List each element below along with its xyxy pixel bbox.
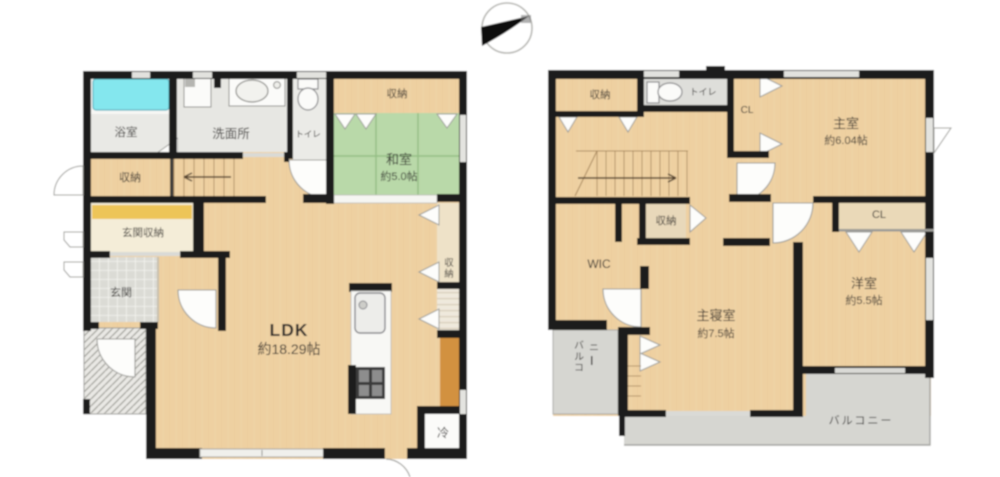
svg-text:洋室: 洋室 bbox=[851, 276, 877, 291]
svg-text:収: 収 bbox=[444, 257, 454, 269]
svg-text:約5.5帖: 約5.5帖 bbox=[845, 293, 882, 307]
svg-text:約5.0帖: 約5.0帖 bbox=[380, 169, 417, 183]
svg-text:主室: 主室 bbox=[833, 116, 859, 131]
svg-text:CL: CL bbox=[741, 105, 754, 116]
svg-text:バルコ: バルコ bbox=[572, 340, 584, 373]
svg-text:収納: 収納 bbox=[590, 88, 611, 101]
svg-text:納: 納 bbox=[444, 268, 454, 280]
svg-text:収納: 収納 bbox=[119, 171, 141, 184]
svg-text:CL: CL bbox=[872, 209, 886, 221]
svg-text:和室: 和室 bbox=[386, 152, 412, 167]
svg-text:約6.04帖: 約6.04帖 bbox=[824, 133, 867, 147]
svg-text:洗面所: 洗面所 bbox=[212, 127, 250, 141]
svg-text:収納: 収納 bbox=[656, 214, 677, 227]
svg-text:収納: 収納 bbox=[387, 87, 408, 100]
svg-text:浴室: 浴室 bbox=[115, 125, 138, 139]
svg-text:主寝室: 主寝室 bbox=[696, 308, 735, 323]
svg-text:LDK: LDK bbox=[270, 320, 309, 340]
svg-text:トイレ: トイレ bbox=[295, 129, 321, 139]
svg-text:トイレ: トイレ bbox=[689, 87, 716, 97]
svg-text:ニ: ニ bbox=[587, 342, 598, 352]
svg-text:WIC: WIC bbox=[587, 257, 611, 271]
svg-text:約18.29帖: 約18.29帖 bbox=[257, 341, 320, 357]
svg-text:約7.5帖: 約7.5帖 bbox=[697, 326, 734, 340]
svg-text:玄関収納: 玄関収納 bbox=[122, 226, 164, 239]
svg-text:冷: 冷 bbox=[437, 426, 449, 440]
svg-text:バルコニー: バルコニー bbox=[829, 414, 894, 427]
svg-text:玄関: 玄関 bbox=[110, 285, 132, 299]
